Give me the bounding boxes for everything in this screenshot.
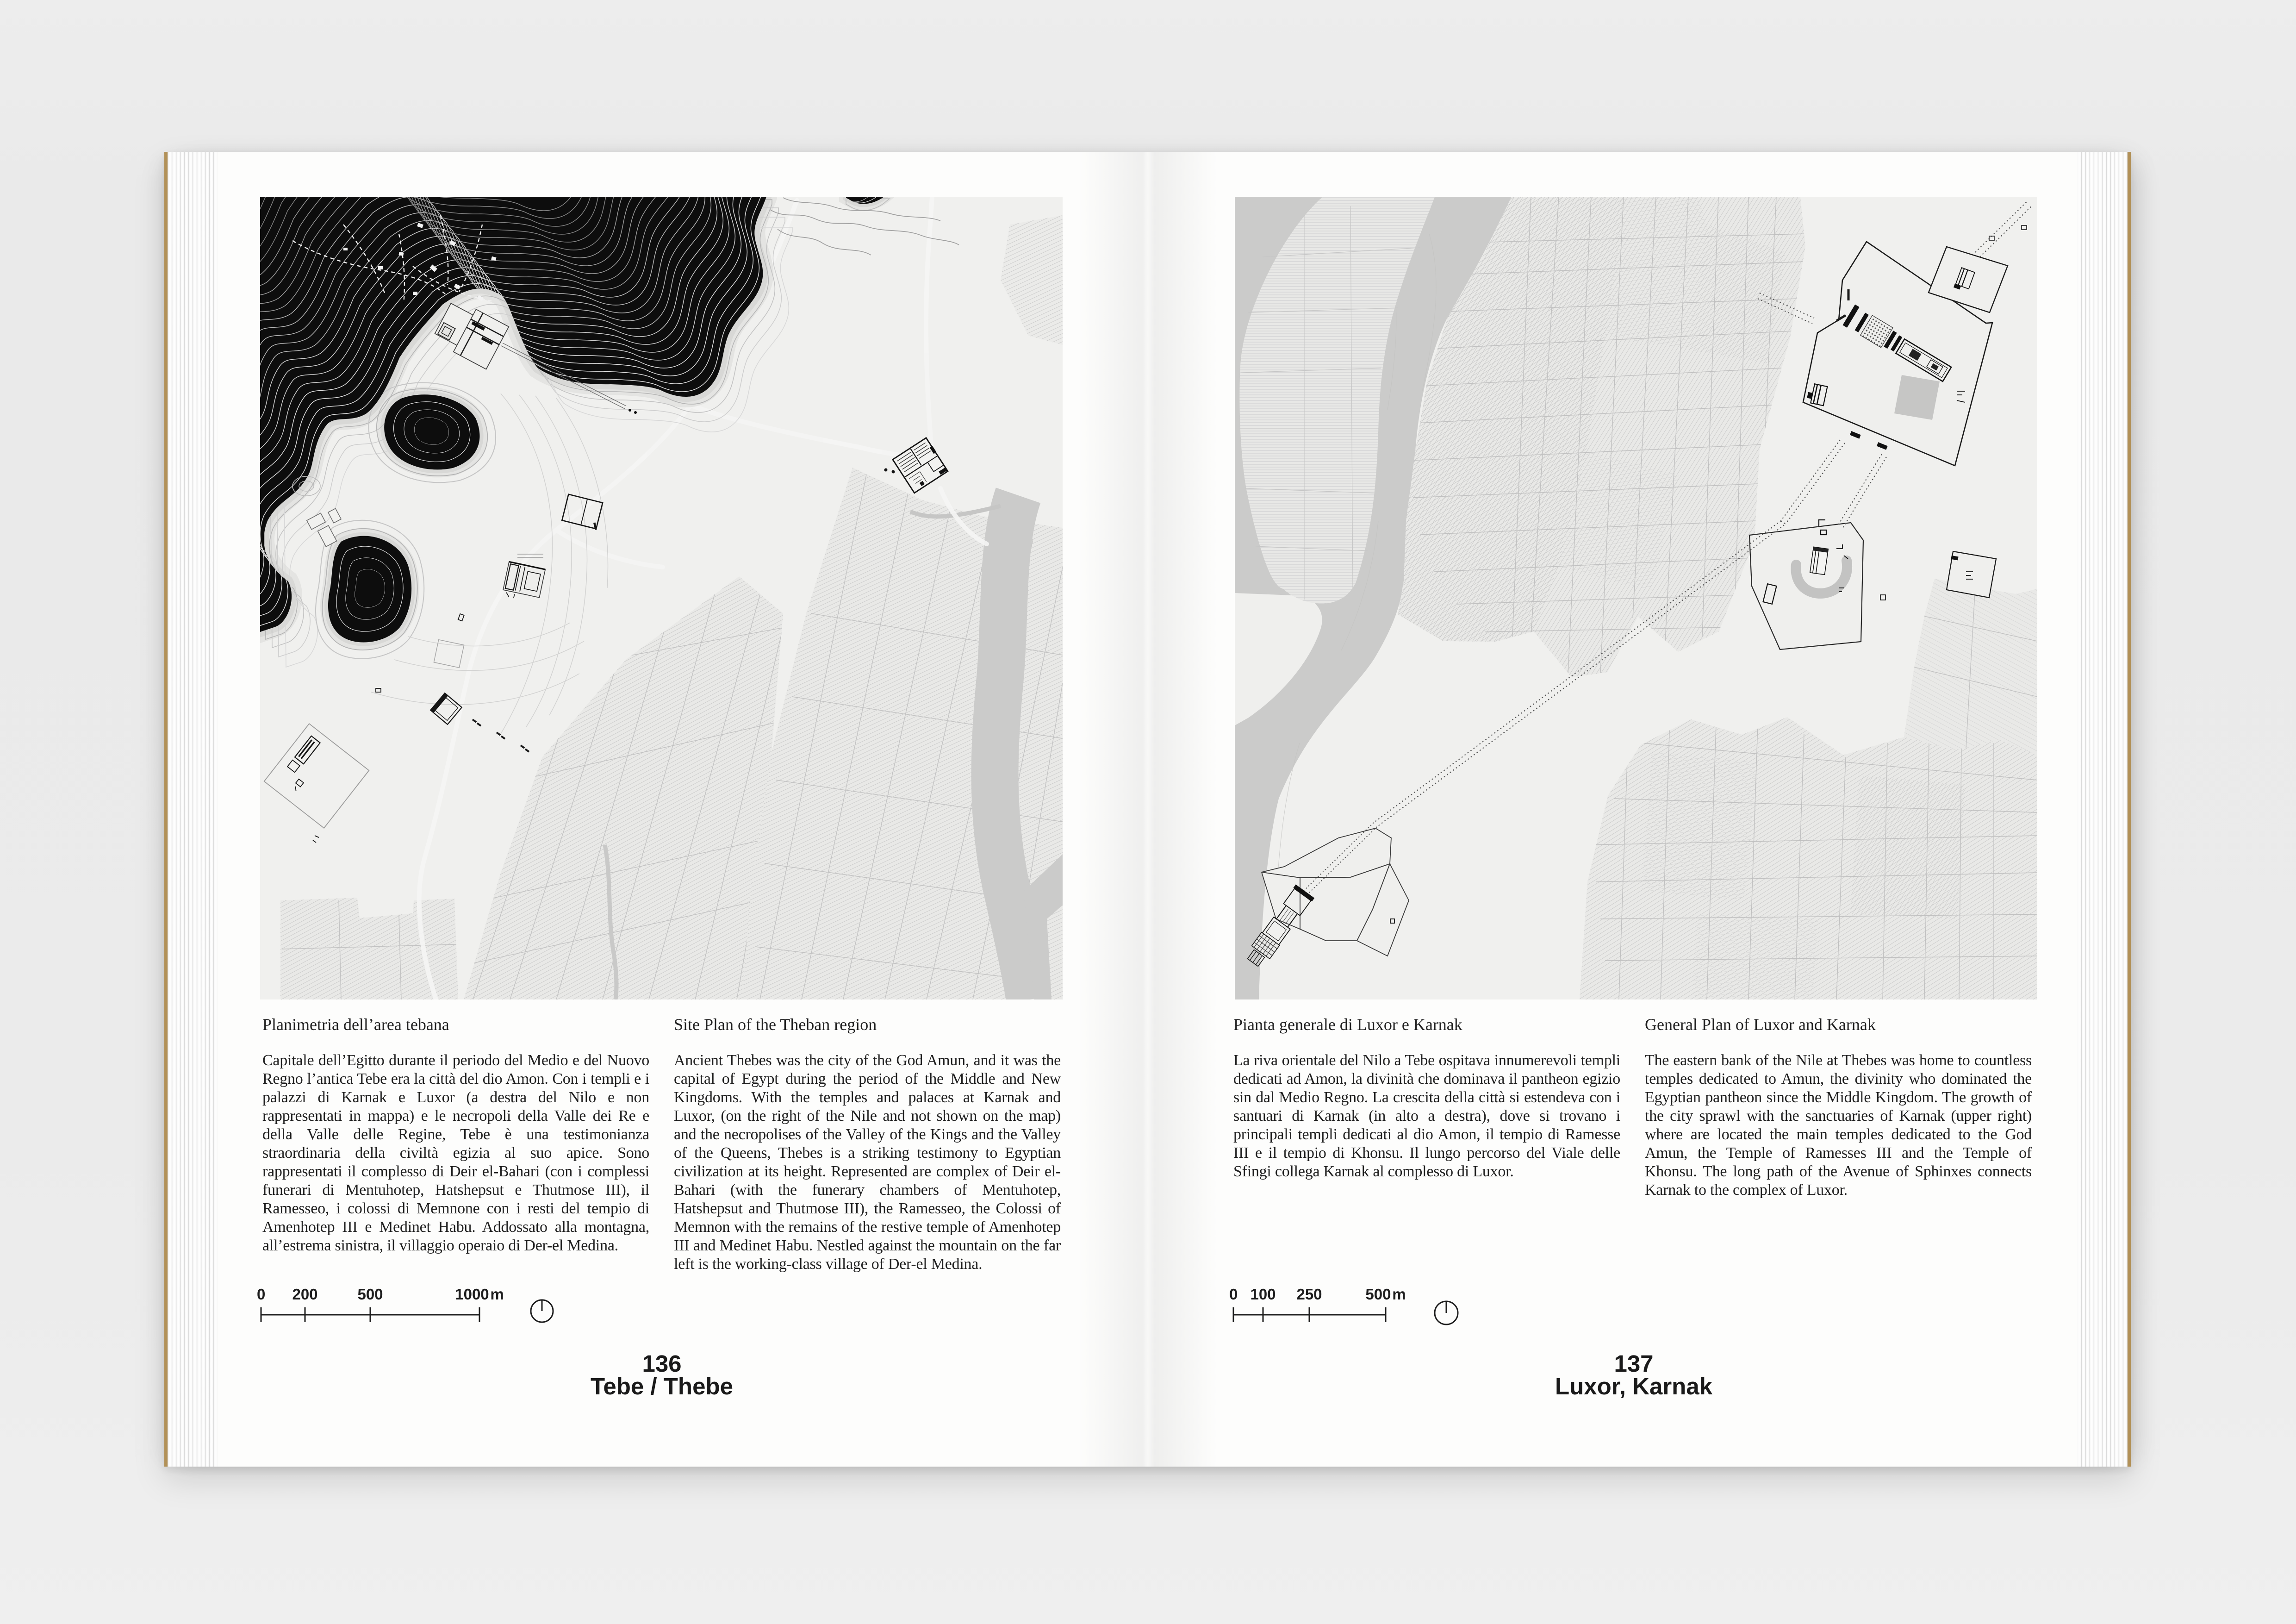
svg-text:100: 100 <box>1250 1286 1276 1303</box>
svg-text:0: 0 <box>257 1286 265 1303</box>
svg-text:500 m: 500 m <box>1365 1286 1406 1303</box>
svg-text:200: 200 <box>292 1286 317 1303</box>
svg-text:500: 500 <box>357 1286 383 1303</box>
svg-text:250: 250 <box>1296 1286 1322 1303</box>
svg-text:0: 0 <box>1229 1286 1238 1303</box>
svg-text:1000 m: 1000 m <box>455 1286 504 1303</box>
